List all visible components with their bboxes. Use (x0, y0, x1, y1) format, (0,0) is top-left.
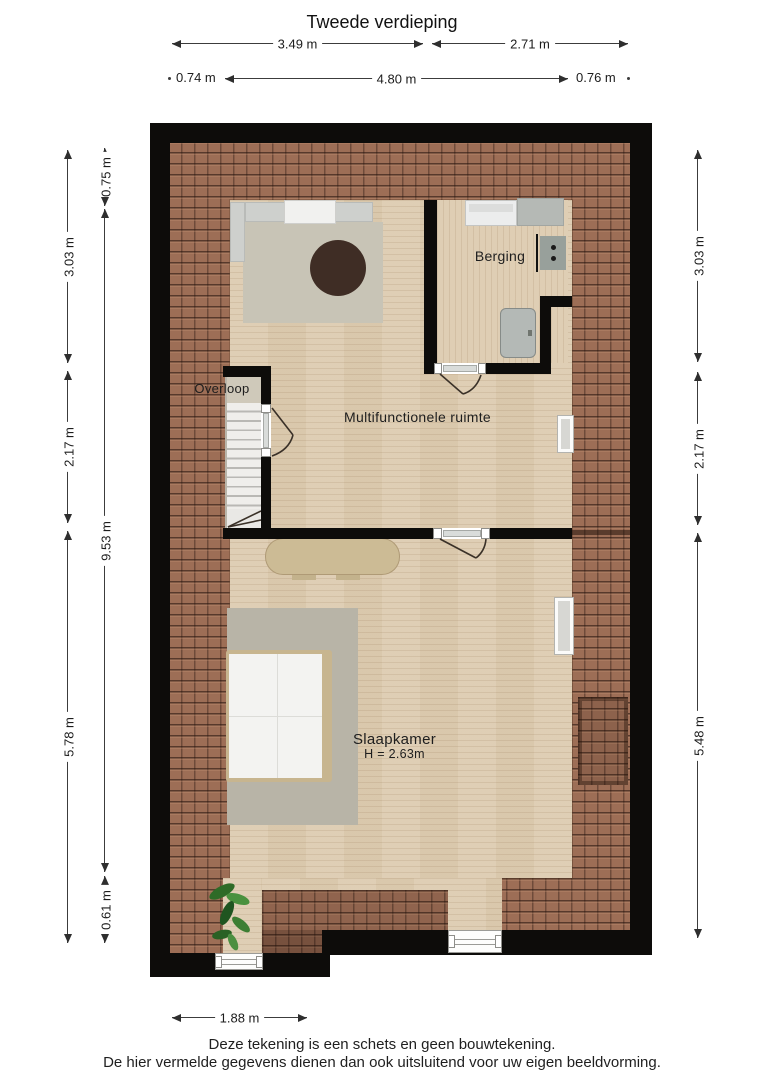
dim-bottom-188: 1.88 m (172, 1017, 307, 1018)
wall-niche-vertical (540, 296, 551, 374)
wall-room-divider (223, 528, 572, 539)
door-swing-berging (435, 374, 485, 400)
dim-top-480: 4.80 m (225, 78, 568, 79)
room-label-slaapkamer: Slaapkamer (337, 731, 452, 748)
wall-berging-left (424, 200, 437, 373)
dim-top-349: 3.49 m (172, 43, 423, 44)
floor-plan-page: Tweede verdieping 3.49 m 2.71 m 0.74 m 4… (0, 0, 764, 1080)
roof-window-lower (554, 597, 574, 655)
dim-right-548: 5.48 m (697, 533, 698, 938)
wall-top (150, 123, 652, 143)
door-swing-slaapkamer (433, 539, 490, 563)
wall-left (150, 123, 170, 977)
wall-right (630, 123, 652, 955)
roof-dormer-right (578, 697, 628, 785)
dim-left-303: 3.03 m (67, 150, 68, 363)
roof-window-upper (557, 415, 574, 453)
dim-top-271: 2.71 m (432, 43, 628, 44)
washer (465, 200, 517, 226)
dim-left-061: 0.61 m (104, 876, 105, 943)
door-leaf-slaapkamer (443, 530, 481, 537)
stairs (225, 377, 262, 528)
mattress (229, 654, 322, 778)
counter (517, 198, 564, 226)
disclaimer-line-1: Deze tekening is een schets en geen bouw… (0, 1036, 764, 1053)
dim-left-578: 5.78 m (67, 531, 68, 943)
room-label-berging: Berging (455, 248, 545, 264)
bench (265, 538, 400, 575)
dim-tick-right (627, 77, 630, 80)
room-label-multifunctionele-ruimte: Multifunctionele ruimte (330, 409, 505, 425)
plant (200, 878, 265, 956)
dim-left-217: 2.17 m (67, 371, 68, 523)
floor-strip-bottom-right (448, 878, 502, 930)
dim-right-303: 3.03 m (697, 150, 698, 362)
round-rug (310, 240, 366, 296)
door-leaf-overloop (263, 413, 269, 448)
bed (226, 650, 332, 782)
door-swing-overloop (272, 404, 300, 458)
cabinet (230, 202, 245, 262)
desk-unit (284, 200, 336, 224)
dim-left-953: 9.53 m (104, 209, 105, 872)
winder-steps (227, 509, 262, 528)
dim-top-076: 0.76 m (576, 70, 616, 85)
dim-right-217: 2.17 m (697, 372, 698, 525)
dim-left-075: 0.75 m (104, 148, 105, 206)
boiler (500, 308, 536, 358)
window-bottom-right (448, 930, 502, 953)
dim-tick-left (168, 77, 171, 80)
roof-wall-seam (572, 530, 632, 535)
room-label-overloop: Overloop (187, 381, 257, 396)
disclaimer-line-2: De hier vermelde gegevens dienen dan ook… (0, 1054, 764, 1071)
room-height-slaapkamer: H = 2.63m (337, 747, 452, 761)
door-leaf-berging (443, 365, 477, 372)
page-title: Tweede verdieping (0, 12, 764, 33)
dim-top-074: 0.74 m (176, 70, 216, 85)
